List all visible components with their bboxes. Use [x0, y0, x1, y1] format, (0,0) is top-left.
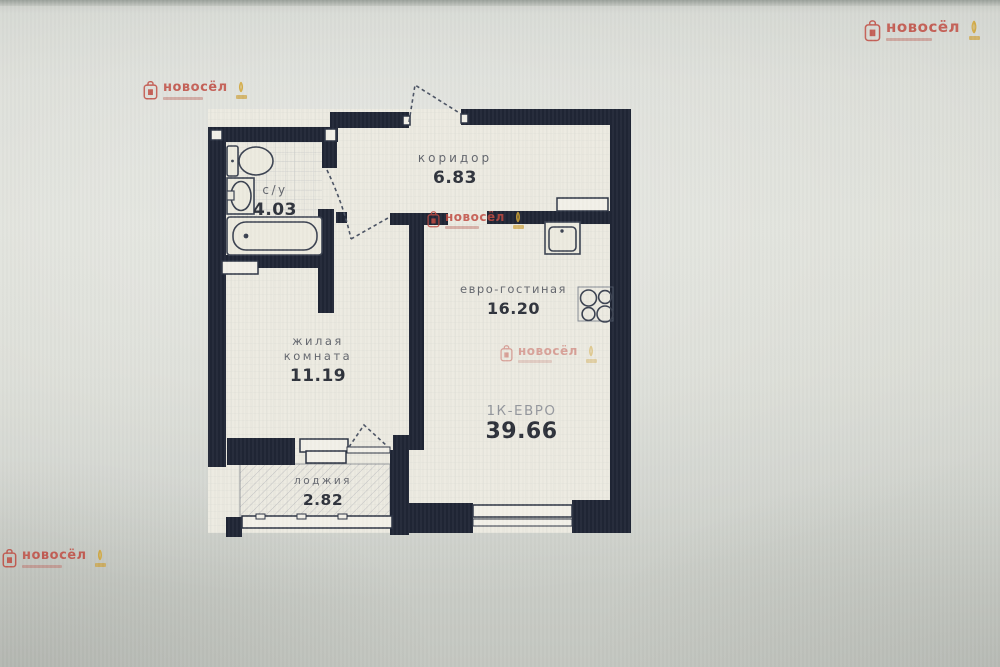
- room-name: коридор: [394, 151, 516, 166]
- watermark-brand-text: новосёл: [163, 81, 228, 94]
- watermark-novosel-bottom-left: новосёл: [2, 549, 106, 572]
- watermark-tagline-blur: [518, 360, 552, 363]
- novosel-house-icon: [427, 211, 440, 232]
- jamb-notch-entrance-right: [461, 114, 468, 123]
- novosel-house-icon: [500, 345, 513, 366]
- novosel-house-icon: [2, 549, 17, 572]
- apartment-type: 1К-ЕВРО: [449, 403, 594, 419]
- watermark-brand-text: новосёл: [886, 20, 960, 35]
- room-area: 11.19: [256, 366, 380, 386]
- room-area: 16.20: [441, 299, 586, 318]
- vent-shaft-kitchen: [557, 198, 608, 211]
- wall-bathroom-top: [208, 127, 338, 142]
- wall-euro-south-left: [409, 503, 473, 533]
- loggia-window-mullion: [256, 514, 265, 519]
- room-area: 4.03: [229, 200, 321, 220]
- watermark-novosel-plan-top-left: новосёл: [143, 81, 247, 104]
- wall-livingroom-south: [227, 438, 295, 465]
- watermark-novosel-center: новосёл: [500, 345, 597, 366]
- watermark-award-icon: [968, 20, 980, 40]
- kitchen-sink-icon: [545, 222, 580, 254]
- wall-west: [208, 127, 226, 467]
- wall-corridor-top-right: [461, 109, 631, 125]
- watermark-novosel-corridor: новосёл: [427, 211, 524, 232]
- wall-divider-foot: [393, 435, 424, 450]
- watermark-award-icon: [586, 345, 597, 363]
- watermark-award-caption-blur: [513, 225, 524, 229]
- novosel-house-icon: [864, 20, 881, 46]
- euro-window-frame-inner: [473, 519, 572, 526]
- watermark-award-icon: [513, 211, 524, 229]
- toilet-icon: [227, 146, 273, 176]
- watermark-tagline-blur: [22, 565, 62, 568]
- room-label-corridor: коридор 6.83: [394, 151, 516, 188]
- wall-loggia-southwest-pier: [226, 517, 242, 537]
- room-label-euro-living: евро-гостиная 16.20: [441, 282, 586, 318]
- watermark-award-icon: [236, 81, 247, 99]
- balcony-window-frame-inner: [306, 451, 346, 463]
- room-label-living-room: жилая комната 11.19: [256, 334, 380, 386]
- euro-window-frame-outer: [473, 505, 572, 517]
- balcony-door-threshold: [347, 447, 390, 453]
- watermark-brand-text: новосёл: [518, 345, 578, 357]
- wall-euro-south-right: [572, 500, 631, 533]
- room-name: евро-гостиная: [441, 282, 586, 297]
- photographed-screen: с/у 4.03 коридор 6.83 жилая комната 11.1…: [0, 0, 1000, 667]
- bathtub-icon: [227, 217, 322, 255]
- wall-room-divider: [409, 225, 424, 437]
- jamb-notch-bathroom: [325, 129, 336, 141]
- watermark-award-icon: [95, 549, 106, 567]
- room-name: лоджия: [262, 474, 384, 489]
- watermark-tagline-blur: [445, 226, 479, 229]
- watermark-award-caption-blur: [95, 563, 106, 567]
- room-area: 6.83: [394, 168, 516, 188]
- room-name: с/у: [229, 183, 321, 198]
- wall-corridor-top-left: [330, 112, 409, 128]
- watermark-novosel-top-right: новосёл: [864, 20, 980, 46]
- balcony-window-frame-outer: [300, 439, 348, 452]
- watermark-brand-text: новосёл: [445, 211, 505, 223]
- loggia-window-mullion: [297, 514, 306, 519]
- room-area: 2.82: [262, 491, 384, 509]
- watermark-brand-text: новосёл: [22, 549, 87, 562]
- apartment-total-area: 39.66: [449, 419, 594, 444]
- wall-bathroom-east-top: [322, 142, 337, 168]
- room-name-line1: жилая: [256, 334, 380, 349]
- duct-box-bathroom: [222, 261, 258, 274]
- jamb-notch-nw: [211, 130, 222, 140]
- wall-door-jamb-stub: [336, 212, 347, 223]
- apartment-summary-label: 1К-ЕВРО 39.66: [449, 403, 594, 444]
- room-label-loggia: лоджия 2.82: [262, 474, 384, 509]
- watermark-tagline-blur: [886, 38, 932, 41]
- room-label-bathroom: с/у 4.03: [229, 183, 321, 220]
- watermark-award-caption-blur: [236, 95, 247, 99]
- watermark-tagline-blur: [163, 97, 203, 100]
- room-name-line2: комната: [256, 349, 380, 364]
- loggia-window-mullion: [338, 514, 347, 519]
- novosel-house-icon: [143, 81, 158, 104]
- watermark-award-caption-blur: [586, 359, 597, 363]
- wall-loggia-east: [390, 450, 409, 535]
- watermark-award-caption-blur: [969, 36, 980, 40]
